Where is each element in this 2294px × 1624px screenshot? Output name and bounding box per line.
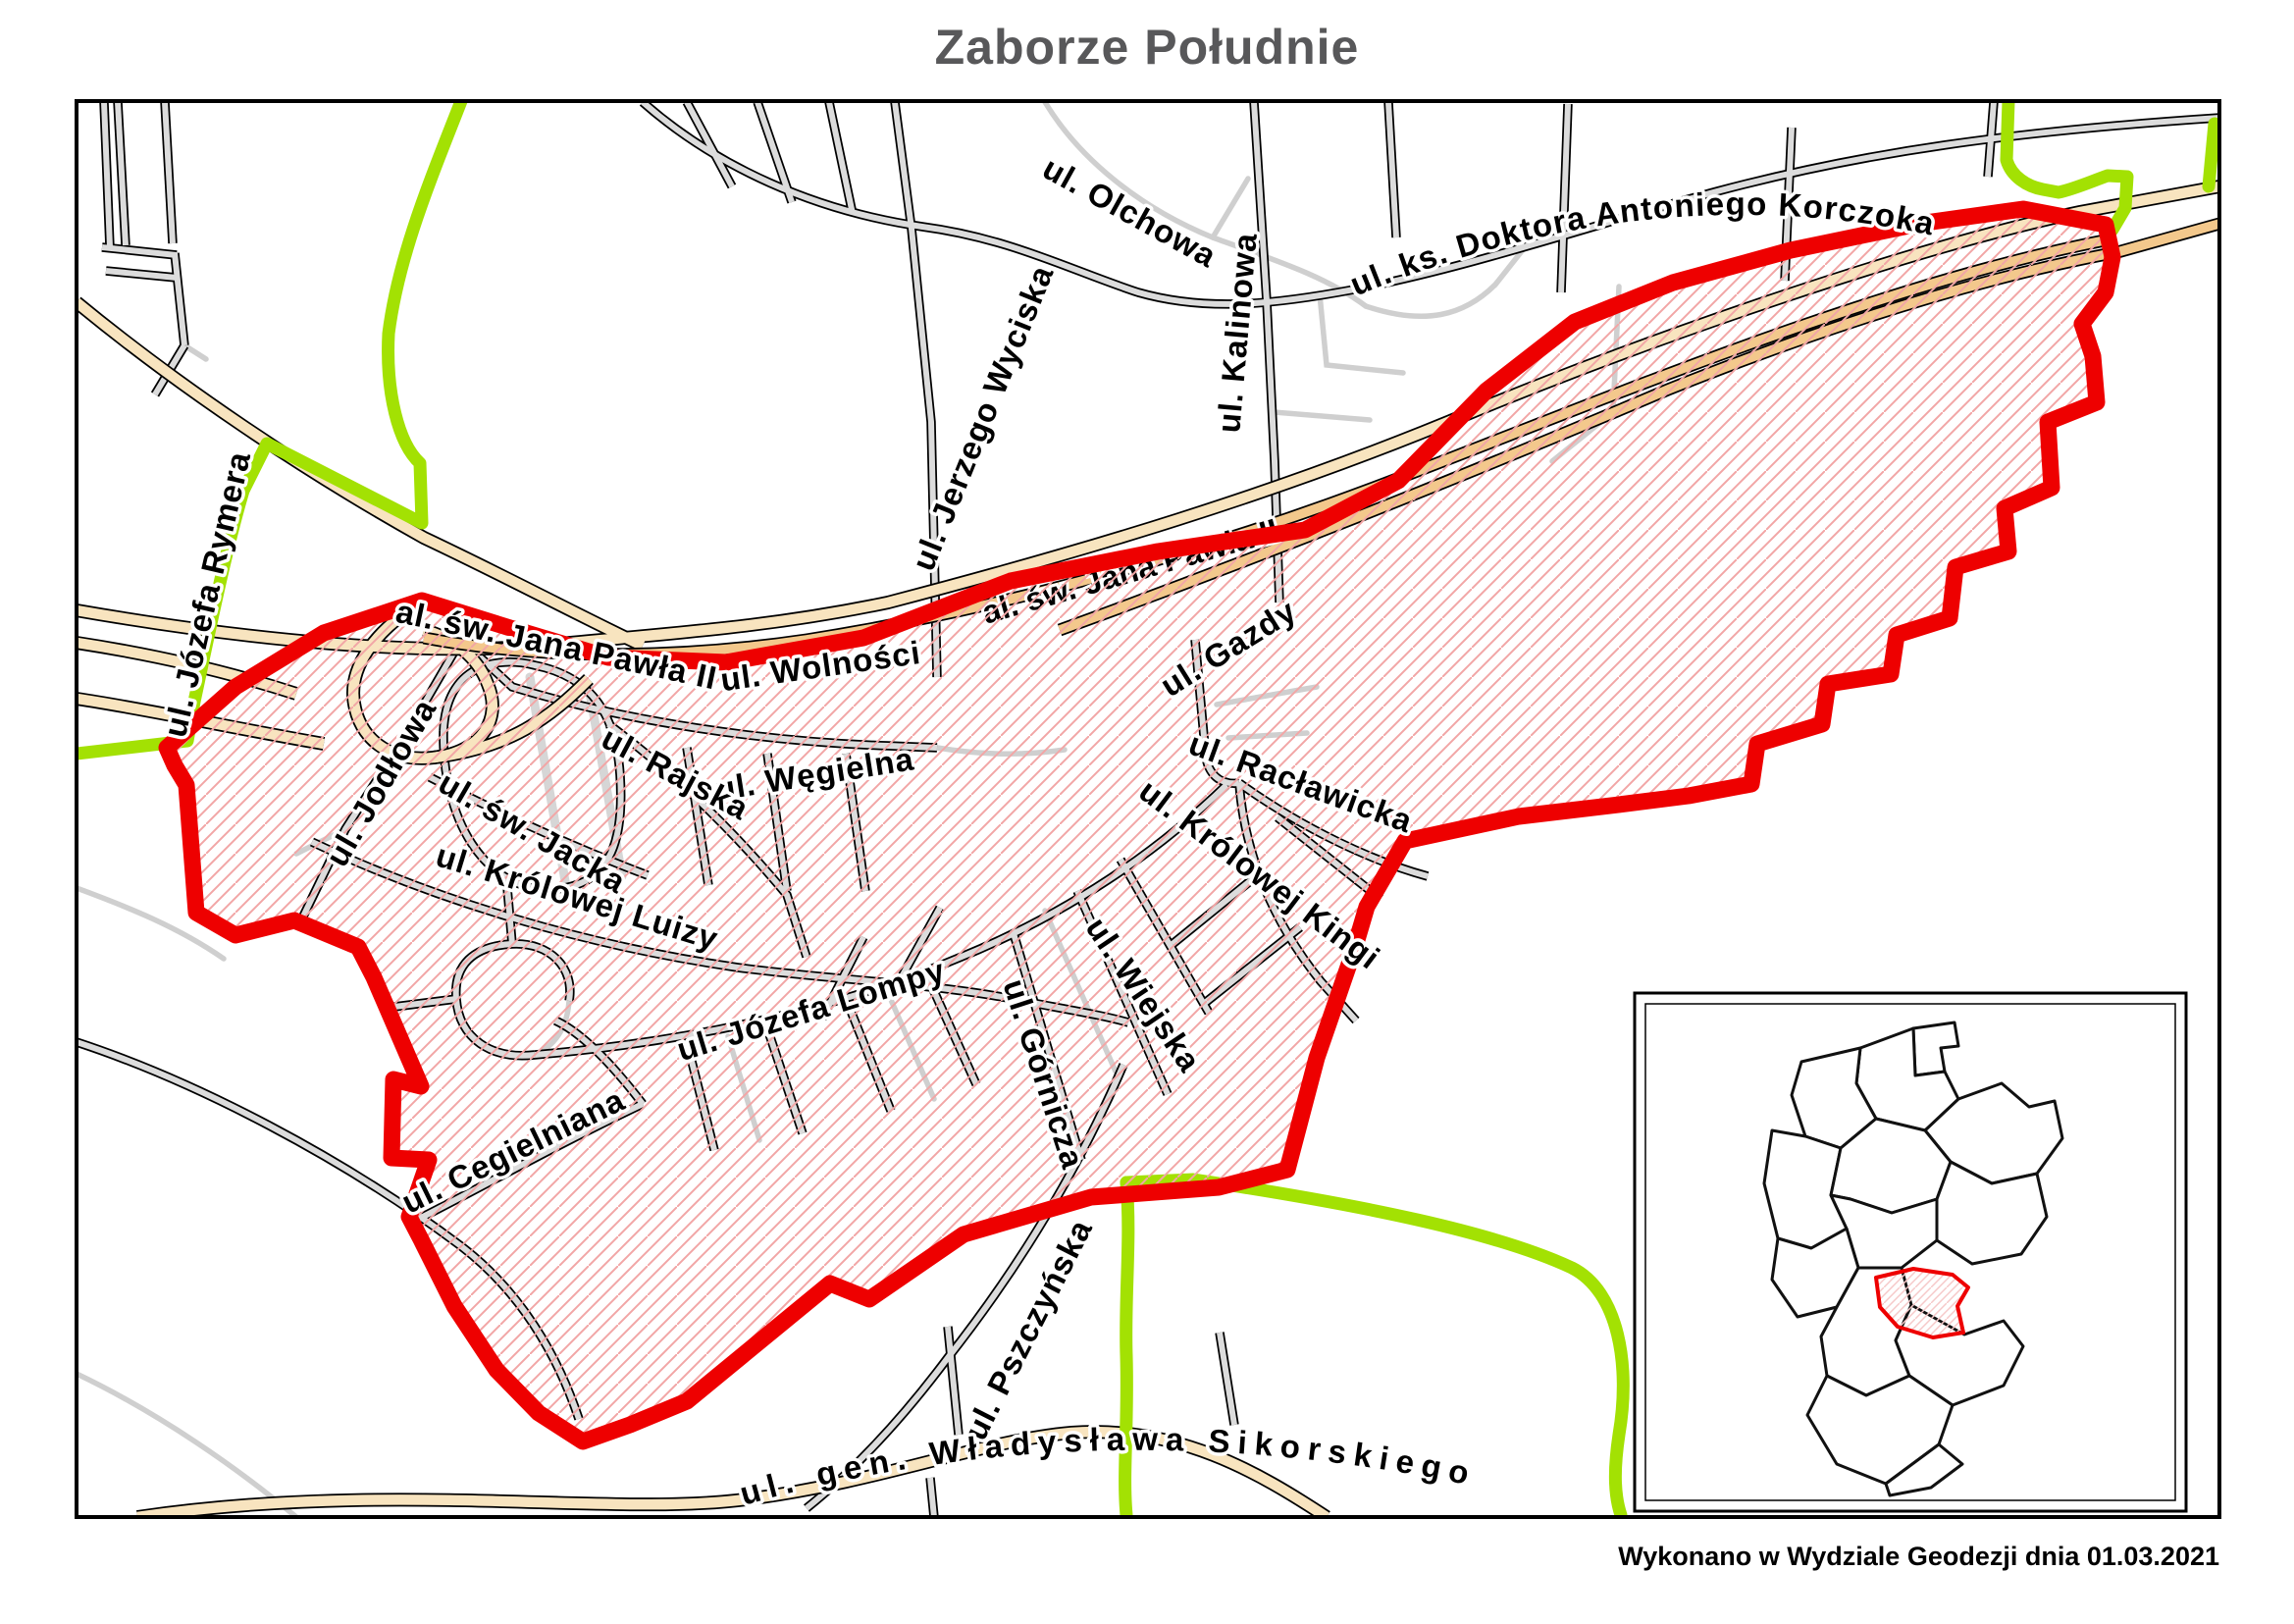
inset-locator-map bbox=[1635, 993, 2186, 1511]
gray-roads-fill-part bbox=[1220, 1333, 1234, 1425]
gray-roads-fill-part bbox=[102, 247, 177, 255]
minor-roads-part bbox=[77, 1374, 296, 1517]
street-label-olchowa: ul. Olchowa bbox=[1037, 149, 1224, 274]
main-roads-part bbox=[77, 302, 643, 646]
caption: Wykonano w Wydziale Geodezji dnia 01.03.… bbox=[1618, 1542, 2219, 1571]
green-border-lines-part bbox=[1125, 1182, 1128, 1515]
minor-roads-part bbox=[1213, 179, 1248, 237]
main-roads-part bbox=[77, 302, 643, 646]
map-canvas: al. św. Jana Pawła II ul. Olchowa ul. Ka… bbox=[0, 0, 2294, 1624]
green-border-lines-part bbox=[2209, 124, 2215, 186]
gray-roads-fill-part bbox=[106, 271, 177, 278]
minor-roads-part bbox=[1268, 296, 1370, 420]
map-page: al. św. Jana Pawła II ul. Olchowa ul. Ka… bbox=[0, 0, 2294, 1624]
green-border-lines-part bbox=[1126, 1179, 1623, 1515]
gray-roads-fill-part bbox=[165, 102, 173, 243]
gray-roads-fill-part bbox=[118, 102, 126, 245]
gray-roads-fill-part bbox=[1561, 104, 1568, 292]
page-title: Zaborze Południe bbox=[935, 20, 1360, 75]
street-label-kalinowa: ul. Kalinowa bbox=[1210, 232, 1264, 435]
map-content: al. św. Jana Pawła II ul. Olchowa ul. Ka… bbox=[77, 101, 2219, 1517]
gray-roads-fill-part bbox=[829, 102, 853, 214]
gray-roads-fill-part bbox=[930, 1478, 934, 1517]
gray-roads-fill-part bbox=[1388, 102, 1396, 237]
